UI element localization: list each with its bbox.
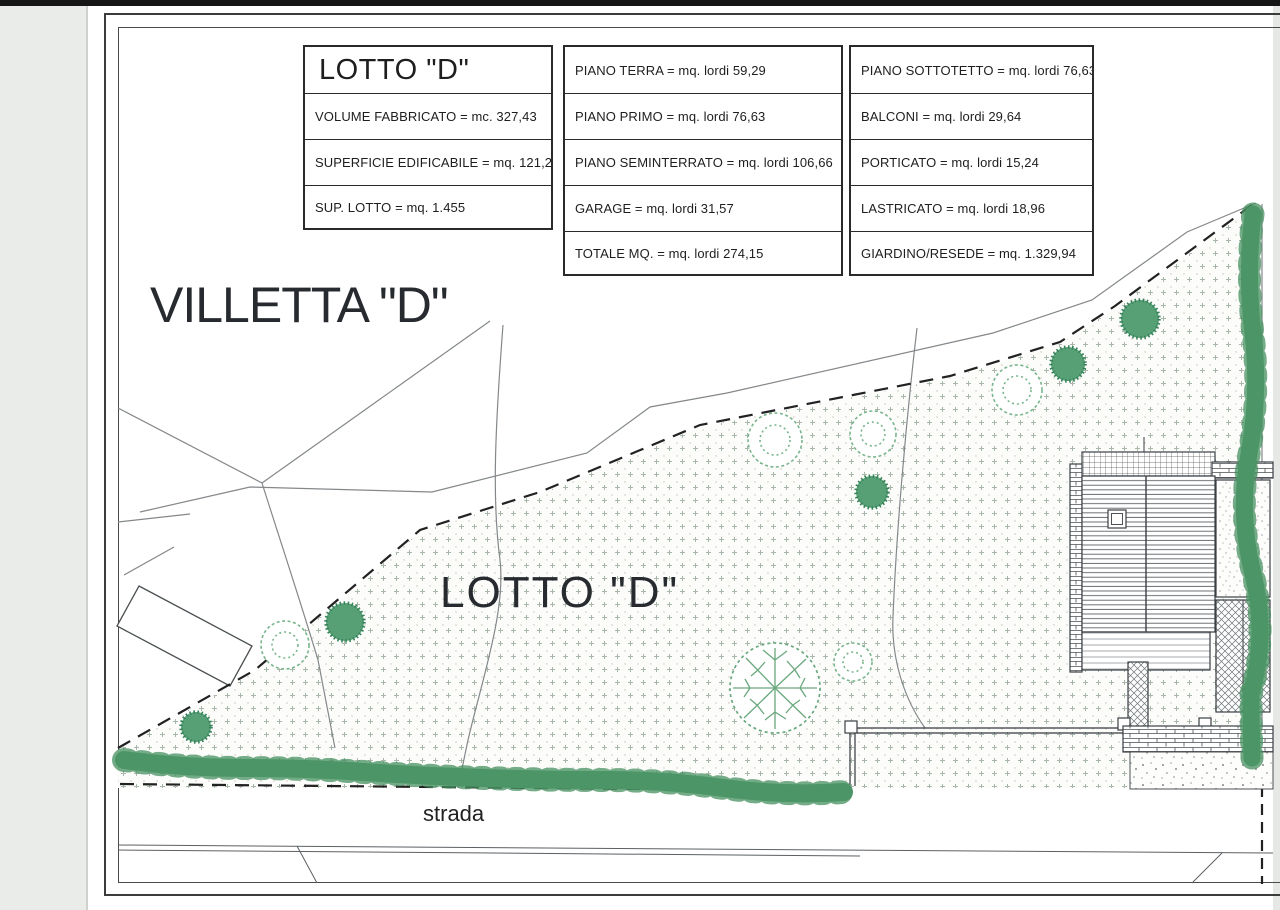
- tree-outline-icon: [261, 621, 309, 669]
- parcel-line: [124, 547, 174, 575]
- scanned-site-plan-page: { "page": { "villetta_title": "VILLETTA …: [0, 0, 1280, 910]
- hatch-strip: [1128, 662, 1148, 728]
- lot-summary-table: LOTTO "D" VOLUME FABBRICATO = mc. 327,43…: [303, 45, 553, 230]
- tree-outline-icon: [850, 411, 896, 457]
- table-row-piano-seminterrato: PIANO SEMINTERRATO = mq. lordi 106,66: [565, 139, 841, 185]
- tree-icon: [856, 476, 888, 508]
- road-label: strada: [423, 801, 484, 827]
- tree-icon: [1121, 300, 1159, 338]
- tree-icon: [1051, 347, 1085, 381]
- table-row-superficie-edificabile: SUPERFICIE EDIFICABILE = mq. 121,27: [305, 139, 551, 185]
- big-tree: [730, 643, 820, 733]
- roof-plan: [1082, 476, 1215, 632]
- floor-areas-table: PIANO TERRA = mq. lordi 59,29 PIANO PRIM…: [563, 45, 843, 276]
- terrace-grid: [1082, 452, 1215, 476]
- table-row-piano-terra: PIANO TERRA = mq. lordi 59,29: [565, 47, 841, 93]
- table-row-piano-sottotetto: PIANO SOTTOTETTO = mq. lordi 76,63: [851, 47, 1092, 93]
- villetta-title: VILLETTA "D": [150, 276, 448, 334]
- table-row-volume-fabbricato: VOLUME FABBRICATO = mc. 327,43: [305, 93, 551, 139]
- tree-outline-icon: [748, 413, 802, 467]
- tree-icon: [326, 603, 364, 641]
- tree-outline-icon: [992, 365, 1042, 415]
- table-row-porticato: PORTICATO = mq. lordi 15,24: [851, 139, 1092, 185]
- table-row-lastricato: LASTRICATO = mq. lordi 18,96: [851, 185, 1092, 231]
- wall-post: [845, 721, 857, 733]
- extras-areas-table: PIANO SOTTOTETTO = mq. lordi 76,63 BALCO…: [849, 45, 1094, 276]
- table-row-giardino-resede: GIARDINO/RESEDE = mq. 1.329,94: [851, 231, 1092, 275]
- parcel-line: [118, 408, 262, 483]
- parcel-line: [262, 321, 490, 483]
- table-row-totale-mq: TOTALE MQ. = mq. lordi 274,15: [565, 231, 841, 275]
- building-footprint-existing: [117, 586, 252, 686]
- table-row-piano-primo: PIANO PRIMO = mq. lordi 76,63: [565, 93, 841, 139]
- lot-label: LOTTO "D": [440, 568, 679, 618]
- table-row-garage: GARAGE = mq. lordi 31,57: [565, 185, 841, 231]
- road-diagonal: [1192, 853, 1222, 883]
- parcel-line: [118, 514, 190, 522]
- tree-outline-icon: [834, 643, 872, 681]
- chimney-inner: [1112, 514, 1123, 525]
- lot-table-header: LOTTO "D": [305, 47, 551, 93]
- table-row-balconi: BALCONI = mq. lordi 29,64: [851, 93, 1092, 139]
- road-lines: [118, 845, 1273, 883]
- brick-band-left: [1070, 464, 1082, 672]
- tree-icon: [181, 712, 211, 742]
- table-row-sup-lotto: SUP. LOTTO = mq. 1.455: [305, 185, 551, 229]
